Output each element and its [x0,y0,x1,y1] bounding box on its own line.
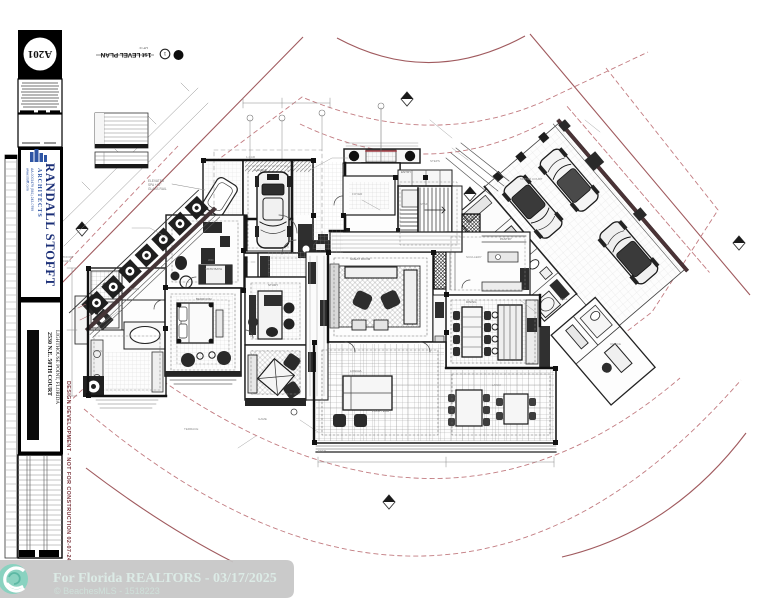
svg-text:OFFICE: OFFICE [610,342,621,346]
svg-text:A201: A201 [28,48,52,60]
svg-text:1st LEVEL PLAN: 1st LEVEL PLAN [100,51,151,58]
svg-text:For Florida REALTORS - 03/17/2: For Florida REALTORS - 03/17/2025 [53,571,277,586]
svg-text:PANTRY: PANTRY [500,237,512,241]
svg-text:MSTR BATH: MSTR BATH [205,267,222,271]
svg-text:SHWR: SHWR [130,287,140,291]
svg-text:© BeachesMLS - 1518223: © BeachesMLS - 1518223 [54,586,160,596]
svg-text:1/8"=1': 1/8"=1' [138,46,148,50]
svg-text:TERRACE: TERRACE [184,427,198,431]
svg-text:DESIGN DEVELOPMENT - NOT FOR C: DESIGN DEVELOPMENT - NOT FOR CONSTRUCTIO… [65,381,71,561]
svg-text:STUDY: STUDY [268,283,278,287]
svg-text:2530 N.E. 50TH COURT: 2530 N.E. 50TH COURT [46,332,52,396]
svg-text:ENTRY: ENTRY [401,170,411,174]
svg-text:SCULLERY: SCULLERY [466,255,482,259]
svg-text:ARCHITECTS: ARCHITECTS [36,168,42,218]
svg-text:GARAGE: GARAGE [254,168,267,172]
svg-text:HALL: HALL [560,297,568,301]
svg-text:AA-0003479 (561) 243-0799: AA-0003479 (561) 243-0799 [30,168,34,211]
svg-text:1-CAR: 1-CAR [246,155,256,159]
svg-text:LIGHTHOUSE POINT, FLORIDA: LIGHTHOUSE POINT, FLORIDA [54,330,60,404]
svg-text:RANDALL STOFFT: RANDALL STOFFT [43,163,57,287]
svg-text:DINING: DINING [466,300,477,304]
svg-text:FOYER: FOYER [352,192,363,196]
svg-text:POOL TERR: POOL TERR [372,409,390,413]
svg-text:VAN: VAN [96,349,102,353]
svg-text:LANAI: LANAI [492,383,501,387]
svg-text:STEP: STEP [318,449,326,453]
svg-text:STEPS: STEPS [430,159,440,163]
svg-text:GLASS RAIL: GLASS RAIL [148,187,167,191]
svg-text:MOTOR COURT: MOTOR COURT [520,177,543,181]
svg-text:GAME: GAME [258,417,267,421]
svg-text:STAIR: STAIR [420,202,429,206]
svg-text:WIC: WIC [208,258,215,262]
svg-text:GREAT ROOM: GREAT ROOM [350,257,371,261]
svg-text:BEDROOM: BEDROOM [196,297,212,301]
svg-text:LOGGIA: LOGGIA [350,369,362,373]
svg-text:www.stofft.com: www.stofft.com [26,168,30,191]
